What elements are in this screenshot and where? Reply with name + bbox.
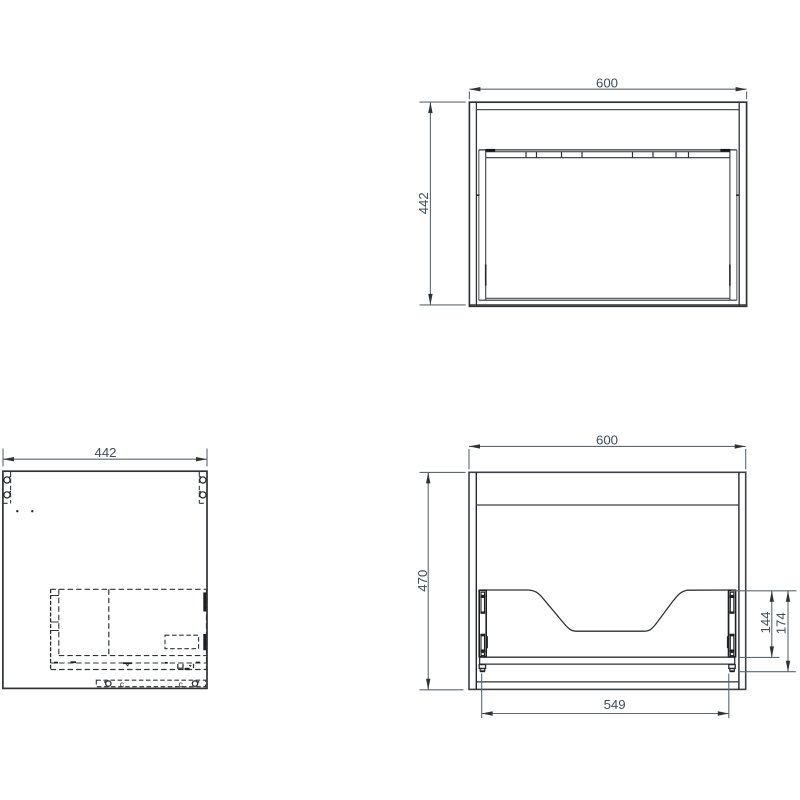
svg-text:144: 144 <box>758 611 773 633</box>
svg-text:c: c <box>178 679 183 689</box>
svg-text:442: 442 <box>94 445 116 460</box>
svg-text:600: 600 <box>596 433 618 448</box>
svg-text:174: 174 <box>773 612 788 634</box>
svg-text:470: 470 <box>415 570 430 592</box>
svg-text:600: 600 <box>596 76 618 91</box>
svg-text:c: c <box>120 679 125 689</box>
svg-text:442: 442 <box>416 192 431 214</box>
svg-text:549: 549 <box>604 697 626 712</box>
